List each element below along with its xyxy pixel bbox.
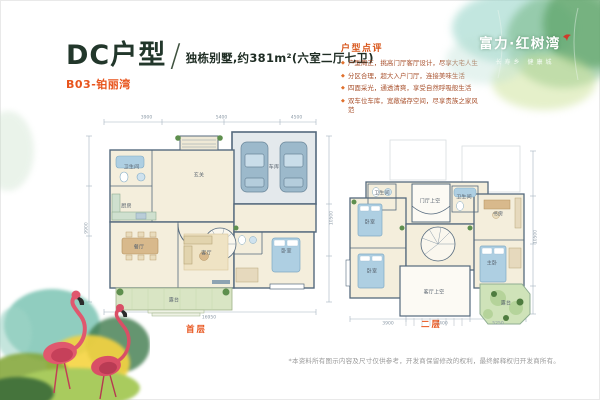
floor-label-second: 二层	[421, 318, 442, 330]
dimension-label: 3900	[382, 322, 393, 327]
floor-label-first: 首层	[186, 323, 207, 335]
room-label: 主卧	[487, 260, 497, 267]
room-label: 卧室	[281, 247, 291, 254]
brand-logo: 富力·红树湾 长寿乡 健康城	[428, 0, 600, 118]
room-label: 露台	[169, 296, 179, 303]
diamond-bullet-icon: ◆	[341, 59, 345, 68]
floor-plan-second: 门厅上空卫生间卫生间卧室卧室书房主卧客厅上空露台3900540052501050…	[338, 136, 538, 326]
red-bird-icon	[563, 33, 571, 41]
diamond-bullet-icon: ◆	[341, 72, 345, 81]
header: DC户型 / 独栋别墅,约381m²(六室二厅七卫) B03-铂丽湾	[66, 42, 374, 92]
spiral-stair-second	[421, 227, 455, 261]
room-label: 门厅上空	[420, 197, 441, 204]
dimension-label: 10500	[534, 230, 539, 244]
room-label: 书房	[493, 210, 503, 217]
room-label: 玄关	[194, 172, 204, 179]
dimension-label: 9900	[84, 222, 89, 233]
footnote: *本资料所有图示内容及尺寸仅供参考，开发商保留修改的权利，最终解释权归开发商所有…	[289, 355, 560, 365]
dimension-label: 10500	[329, 211, 334, 225]
flamingo-illustration	[0, 263, 150, 400]
room-label: 客厅上空	[424, 288, 445, 295]
room-label: 卫生间	[374, 190, 390, 197]
brochure-page: DC户型 / 独栋别墅,约381m²(六室二厅七卫) B03-铂丽湾 户型点评 …	[0, 0, 600, 400]
dimension-label: 3900	[141, 116, 152, 121]
room-label: 卧室	[365, 218, 375, 225]
title-separator: /	[170, 43, 180, 69]
room-label: 餐厅	[134, 243, 144, 250]
brand-name: 富力·红树湾	[479, 36, 561, 52]
dimension-label: 16950	[202, 315, 216, 320]
page-title: DC户型	[66, 42, 166, 69]
room-label: 客厅	[201, 249, 211, 256]
second-floor-plan-drawing	[338, 136, 538, 326]
watercolor-leaf-left	[0, 106, 44, 196]
unit-code: B03-铂丽湾	[66, 76, 374, 92]
diamond-bullet-icon: ◆	[341, 97, 345, 106]
brand-tagline: 长寿乡 健康城	[460, 57, 590, 66]
dimension-label: 4500	[291, 116, 302, 121]
room-label: 车库	[269, 164, 279, 171]
room-label: 卫生间	[456, 193, 472, 200]
dimension-label: 5250	[492, 322, 503, 327]
diamond-bullet-icon: ◆	[341, 84, 345, 93]
brand-text: 富力·红树湾 长寿乡 健康城	[460, 32, 590, 66]
dimension-label: 5400	[216, 116, 227, 121]
room-label: 露台	[501, 300, 511, 307]
room-label: 卧室	[367, 267, 377, 274]
room-label: 厨房	[121, 202, 131, 209]
room-label: 卫生间	[124, 164, 140, 171]
